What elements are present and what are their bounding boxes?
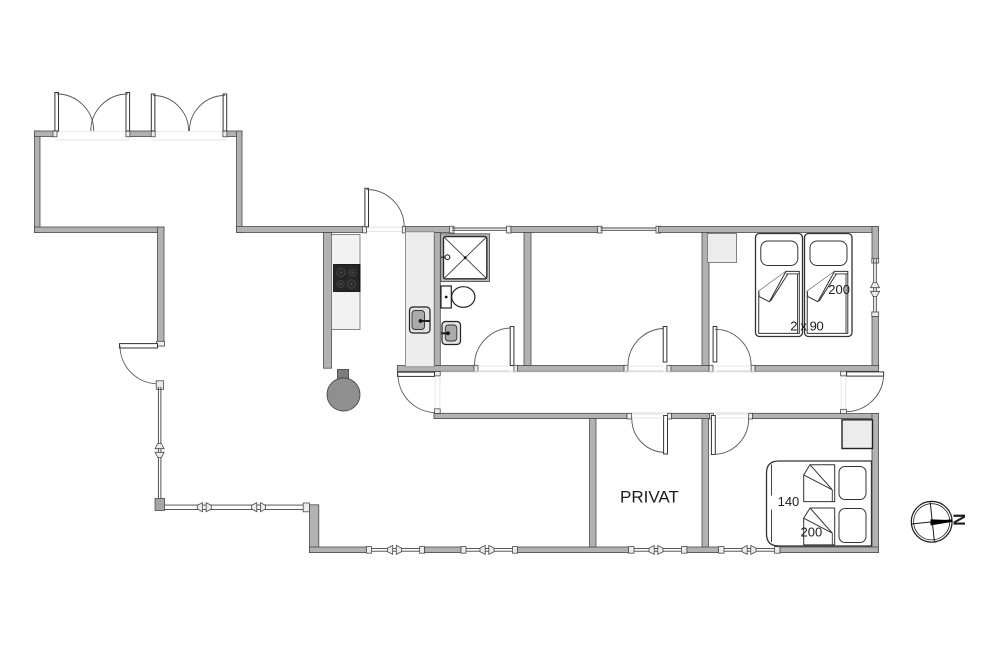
svg-text:PRIVAT: PRIVAT bbox=[620, 488, 679, 507]
svg-text:140: 140 bbox=[778, 494, 800, 509]
svg-text:N: N bbox=[950, 514, 969, 526]
svg-text:2 x 90: 2 x 90 bbox=[790, 318, 823, 333]
svg-text:200: 200 bbox=[801, 525, 823, 540]
svg-text:200: 200 bbox=[828, 282, 850, 297]
